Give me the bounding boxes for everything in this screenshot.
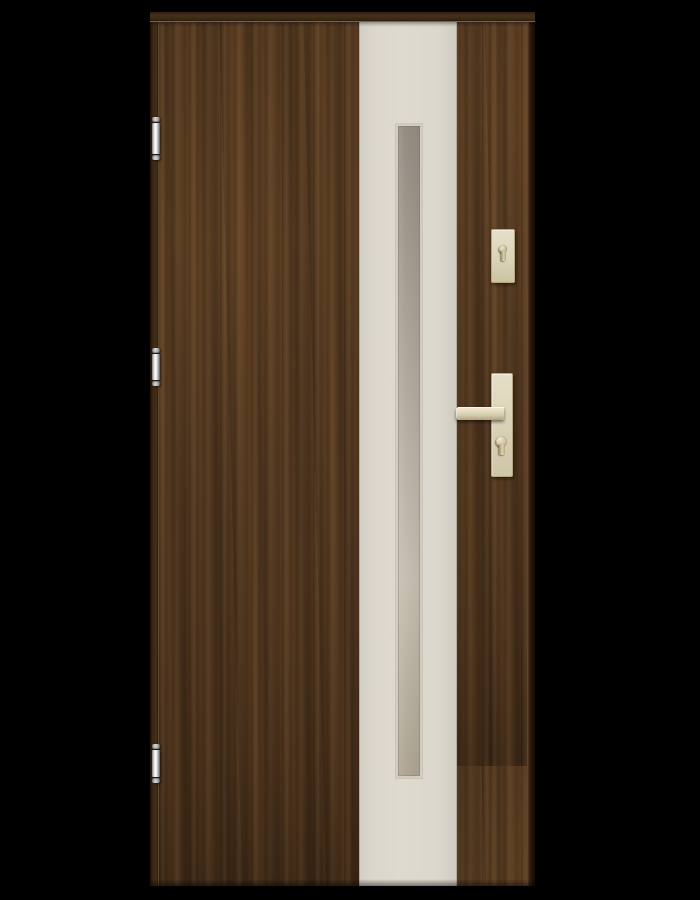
- euro-cylinder-tail-icon: [499, 444, 505, 455]
- door-hinge-top: [152, 117, 160, 160]
- door-bottom-shadow: [150, 879, 535, 886]
- hinge-cap: [152, 381, 160, 386]
- door-left-wood-panel: [158, 21, 359, 886]
- upper-keyhole-tail-icon: [501, 251, 506, 261]
- hinge-cap: [152, 155, 160, 160]
- hinge-cap: [152, 744, 160, 749]
- hinge-barrel: [152, 354, 160, 380]
- door-glazing-strip: [396, 124, 422, 778]
- hinge-cap: [152, 348, 160, 353]
- handle-backplate: [491, 373, 513, 477]
- door-hinge-bottom: [152, 744, 160, 783]
- hinge-barrel: [152, 123, 160, 154]
- door-top-frame: [150, 12, 535, 22]
- door-right-edge: [527, 21, 535, 886]
- door-handle-lever: [456, 407, 504, 420]
- upper-lock-escutcheon: [491, 229, 515, 283]
- door-hinge-middle: [152, 348, 160, 386]
- door-center-panel: [359, 21, 457, 886]
- hinge-cap: [152, 778, 160, 783]
- hinge-barrel: [152, 750, 160, 777]
- product-photo-scene: [0, 0, 700, 900]
- entrance-door: [150, 12, 535, 886]
- hinge-cap: [152, 117, 160, 122]
